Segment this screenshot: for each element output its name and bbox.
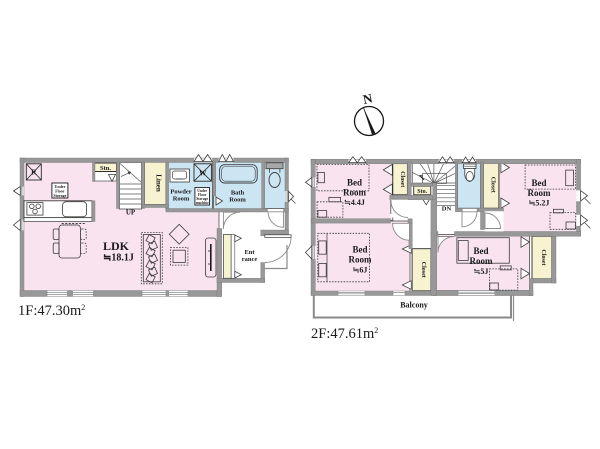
svg-text:Room: Room [349, 255, 372, 265]
svg-text:Room: Room [173, 196, 190, 203]
svg-text:Bed: Bed [347, 178, 362, 188]
svg-text:≒5.2J: ≒5.2J [529, 199, 550, 208]
svg-text:Closet: Closet [420, 262, 426, 278]
svg-text:1F:47.30m2: 1F:47.30m2 [18, 303, 85, 319]
svg-text:Storage: Storage [53, 193, 66, 198]
svg-text:Bed: Bed [473, 246, 488, 256]
svg-text:R: R [31, 168, 37, 177]
svg-text:W: W [199, 169, 206, 177]
svg-text:UP: UP [126, 209, 136, 217]
svg-text:machine: machine [196, 201, 209, 205]
svg-text:≒4.4J: ≒4.4J [344, 198, 365, 207]
svg-text:2F:47.61m2: 2F:47.61m2 [311, 326, 378, 342]
svg-text:≒6J: ≒6J [353, 266, 368, 275]
svg-text:Bed: Bed [352, 245, 367, 255]
svg-text:Stn.: Stn. [100, 165, 111, 172]
svg-text:≒18.1J: ≒18.1J [103, 253, 134, 264]
svg-text:Balcony: Balcony [400, 301, 428, 310]
svg-text:Room: Room [528, 188, 551, 198]
svg-text:Room: Room [343, 188, 366, 198]
svg-text:DN: DN [442, 206, 452, 213]
svg-text:Closet: Closet [399, 171, 405, 187]
svg-text:Linen: Linen [155, 174, 163, 192]
svg-text:Powder: Powder [170, 189, 191, 196]
svg-text:rance: rance [242, 256, 258, 263]
svg-text:Bed: Bed [531, 178, 546, 188]
svg-text:Closet: Closet [490, 177, 496, 193]
svg-text:Room: Room [229, 197, 246, 204]
svg-text:Ent: Ent [244, 249, 255, 256]
svg-text:Room: Room [470, 256, 493, 266]
svg-text:Closet: Closet [540, 250, 546, 266]
svg-text:≒5J: ≒5J [474, 267, 489, 276]
svg-text:LDK: LDK [103, 239, 130, 253]
svg-text:Bath: Bath [231, 190, 245, 197]
svg-text:Sto.: Sto. [417, 189, 427, 195]
